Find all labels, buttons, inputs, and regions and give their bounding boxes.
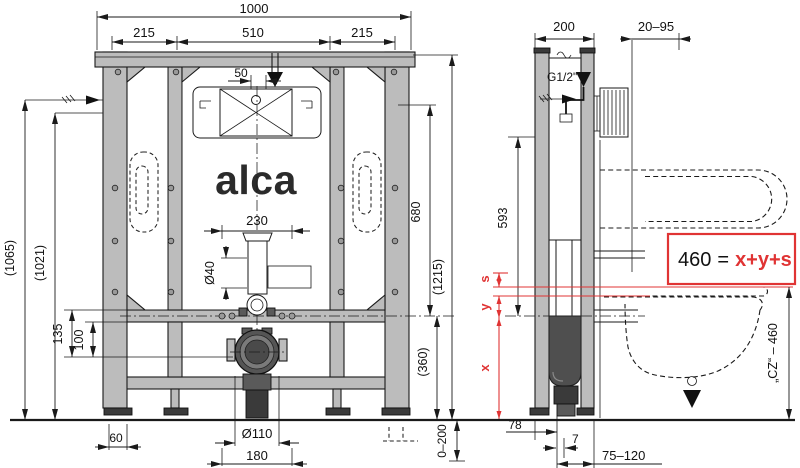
- dim-680: 680: [409, 202, 423, 223]
- dim-frame-depth: 200: [553, 19, 575, 34]
- dim-frame-height: (1215): [431, 259, 445, 295]
- cistern-side: [549, 58, 581, 240]
- outlet-direction-icon: [683, 390, 701, 408]
- flush-pipe: [248, 241, 267, 294]
- brand-logo: alca: [215, 157, 297, 203]
- dim-100: 100: [72, 330, 86, 351]
- side-view: G1/2" 200: [477, 19, 795, 468]
- dim-leg-adjust: 0–200: [435, 424, 449, 458]
- toilet-bowl-outline: [604, 287, 768, 408]
- dim-height-inner-group: (1021): [33, 113, 103, 420]
- dim-foot-offset: 60: [109, 431, 123, 445]
- svg-text:460=x+y+s: 460=x+y+s: [678, 249, 792, 271]
- inlet-hose-icon: [557, 52, 571, 58]
- dim-7: 7: [572, 432, 579, 446]
- vent-grille-icon: [594, 88, 628, 137]
- dim-593-group: 593: [496, 137, 535, 316]
- dim-leg-adjust-group: 0–200: [383, 420, 465, 461]
- seat-height-chain: s y x: [477, 273, 793, 419]
- dim-height-outer-group: (1065): [3, 100, 103, 420]
- dim-drain-dia: Ø110: [242, 426, 273, 441]
- dim-outlet-range: 75–120: [602, 448, 645, 463]
- dim-7-group: 7: [543, 432, 579, 458]
- dim-total-width: 1000: [240, 1, 269, 16]
- var-y: y: [477, 303, 492, 311]
- dim-drain-height: (360): [416, 347, 430, 376]
- dim-bowl-height-group: „CZ“ – 460: [766, 287, 789, 420]
- side-post-back: [581, 52, 594, 408]
- foot: [164, 408, 188, 415]
- front-view: alca 50 230: [3, 1, 465, 466]
- formula-box: 460=x+y+s: [668, 234, 795, 284]
- dim-foot-offset-group: 60: [95, 424, 141, 450]
- dim-135: 135: [51, 324, 65, 345]
- label-thread: G1/2": [547, 70, 577, 84]
- foot: [326, 408, 350, 415]
- dim-flush-width: 230: [246, 213, 268, 228]
- dim-span-center: 510: [242, 25, 264, 40]
- dim-span-group: 215 510 215: [112, 25, 395, 50]
- panel-right: [344, 67, 385, 310]
- dim-drain-span: 180: [246, 448, 268, 463]
- dim-593: 593: [496, 208, 510, 229]
- flush-bell: [243, 233, 272, 241]
- flush-button-icon: [252, 96, 261, 105]
- dim-height-outer: (1065): [3, 240, 17, 276]
- formula-lhs: 460: [678, 249, 711, 271]
- leg: [171, 389, 179, 408]
- foot: [382, 408, 410, 415]
- var-s: s: [477, 275, 492, 282]
- grab-rail-outline: [600, 170, 787, 228]
- technical-drawing: alca 50 230: [0, 0, 800, 468]
- side-post-front: [535, 52, 549, 408]
- drain-outlet-icon: [246, 390, 268, 418]
- top-rail: [95, 52, 415, 67]
- drain-assembly: [227, 328, 287, 418]
- outer-post-left: [103, 52, 127, 408]
- panel-left: [127, 67, 168, 310]
- dim-bowl-height: „CZ“ – 460: [766, 323, 780, 383]
- dim-flush-dia: Ø40: [203, 261, 217, 285]
- dim-span-left: 215: [133, 25, 155, 40]
- flush-pipe-side: [556, 240, 572, 318]
- dim-drain-height-group: (360): [416, 316, 437, 420]
- inner-post-left-lower: [168, 322, 182, 377]
- dim-wall-range-group: 20–95: [620, 19, 691, 50]
- installation-frame-drawing: alca 50 230: [0, 0, 800, 468]
- leg: [333, 389, 341, 408]
- dim-frame-depth-group: 200: [535, 19, 594, 48]
- var-x: x: [477, 364, 492, 372]
- dim-inlet-offset: 50: [234, 66, 248, 80]
- dim-span-right: 215: [351, 25, 373, 40]
- inner-post-right-lower: [330, 322, 344, 377]
- pipe-connector: [247, 295, 267, 315]
- formula-rhs: x+y+s: [735, 249, 792, 271]
- foot: [104, 408, 132, 415]
- formula-eq: =: [717, 249, 729, 271]
- dim-78-group: 78: [506, 416, 557, 468]
- dim-wall-range: 20–95: [638, 19, 674, 34]
- dim-height-inner: (1021): [33, 245, 47, 281]
